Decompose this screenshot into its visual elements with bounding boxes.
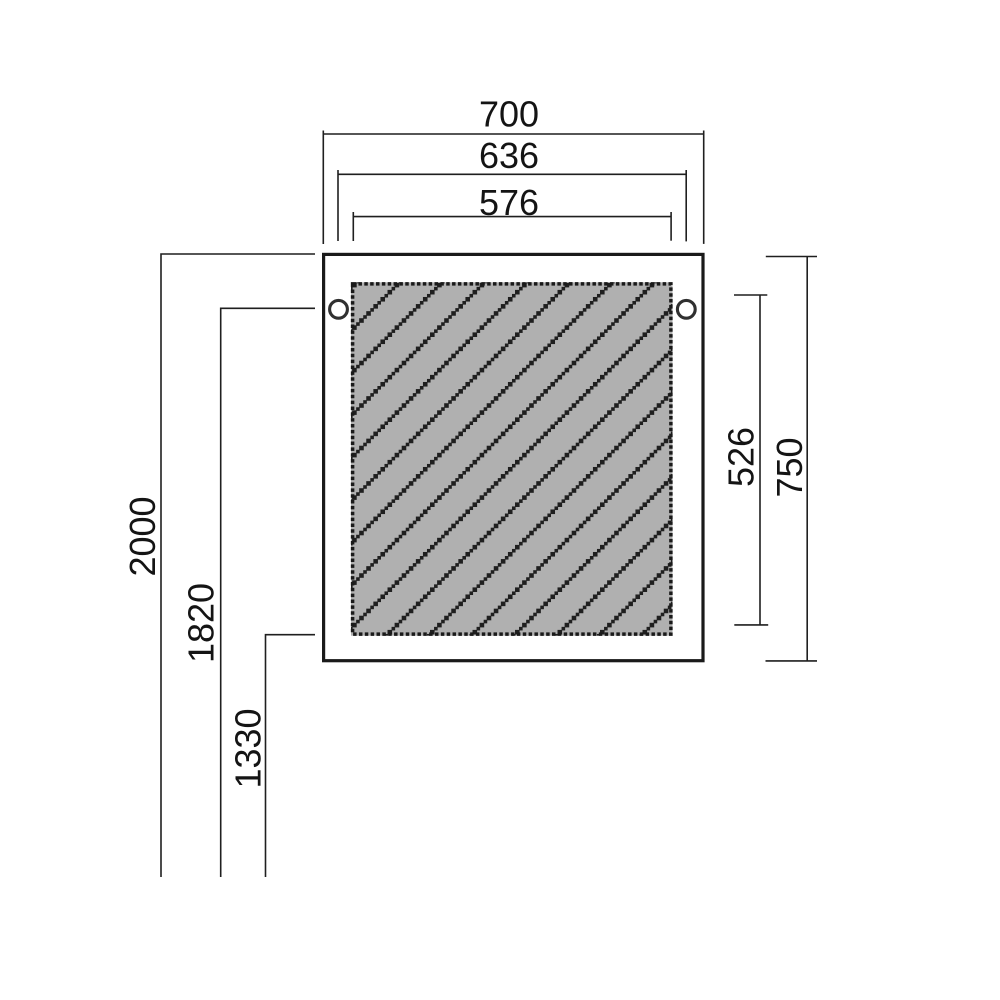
svg-text:636: 636 [479,135,539,176]
svg-text:1820: 1820 [181,583,222,663]
svg-text:576: 576 [479,182,539,223]
svg-text:750: 750 [769,437,810,497]
svg-text:526: 526 [721,427,762,487]
svg-text:2000: 2000 [122,496,163,576]
svg-text:1330: 1330 [228,708,269,788]
svg-text:700: 700 [479,94,539,135]
